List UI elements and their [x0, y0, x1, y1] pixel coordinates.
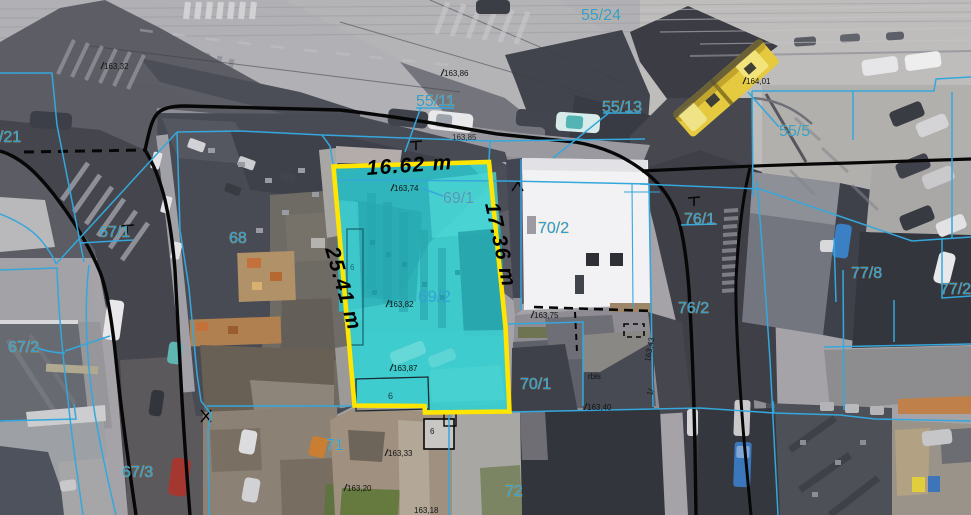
- svg-text:71: 71: [326, 437, 344, 454]
- svg-text:163,82: 163,82: [389, 300, 414, 309]
- svg-text:70/2: 70/2: [538, 220, 569, 237]
- svg-text:77/2: 77/2: [940, 281, 971, 298]
- svg-text:67/1: 67/1: [99, 224, 130, 241]
- svg-text:164,01: 164,01: [746, 77, 771, 86]
- svg-text:76/2: 76/2: [678, 300, 709, 317]
- svg-text:70/1: 70/1: [520, 376, 551, 393]
- svg-text:76/1: 76/1: [684, 211, 715, 228]
- svg-text:1/21: 1/21: [0, 129, 21, 146]
- svg-text:68: 68: [229, 230, 247, 247]
- svg-text:67/3: 67/3: [122, 464, 153, 481]
- svg-text:69/2: 69/2: [418, 287, 451, 306]
- svg-text:163,86: 163,86: [444, 69, 469, 78]
- svg-text:163,40: 163,40: [587, 403, 612, 412]
- svg-text:67/2: 67/2: [8, 339, 39, 356]
- svg-text:55/5: 55/5: [779, 123, 810, 140]
- svg-text:163,32: 163,32: [104, 62, 129, 71]
- svg-text:72: 72: [505, 483, 523, 500]
- svg-text:163,74: 163,74: [394, 184, 419, 193]
- svg-text:69/1: 69/1: [443, 190, 474, 207]
- svg-text:55/11: 55/11: [416, 93, 455, 110]
- svg-text:163,20: 163,20: [347, 484, 372, 493]
- svg-text:163,18: 163,18: [414, 506, 439, 515]
- svg-text:6: 6: [430, 427, 435, 436]
- svg-text:163,75: 163,75: [534, 311, 559, 320]
- svg-text:163,87: 163,87: [393, 364, 418, 373]
- svg-text:77/8: 77/8: [851, 265, 882, 282]
- svg-text:6: 6: [388, 391, 393, 401]
- svg-text:rbłs: rbłs: [588, 372, 601, 381]
- svg-text:163,33: 163,33: [388, 449, 413, 458]
- svg-text:163,85: 163,85: [452, 133, 477, 142]
- svg-text:55/24: 55/24: [581, 7, 621, 24]
- svg-text:55/13: 55/13: [602, 99, 642, 116]
